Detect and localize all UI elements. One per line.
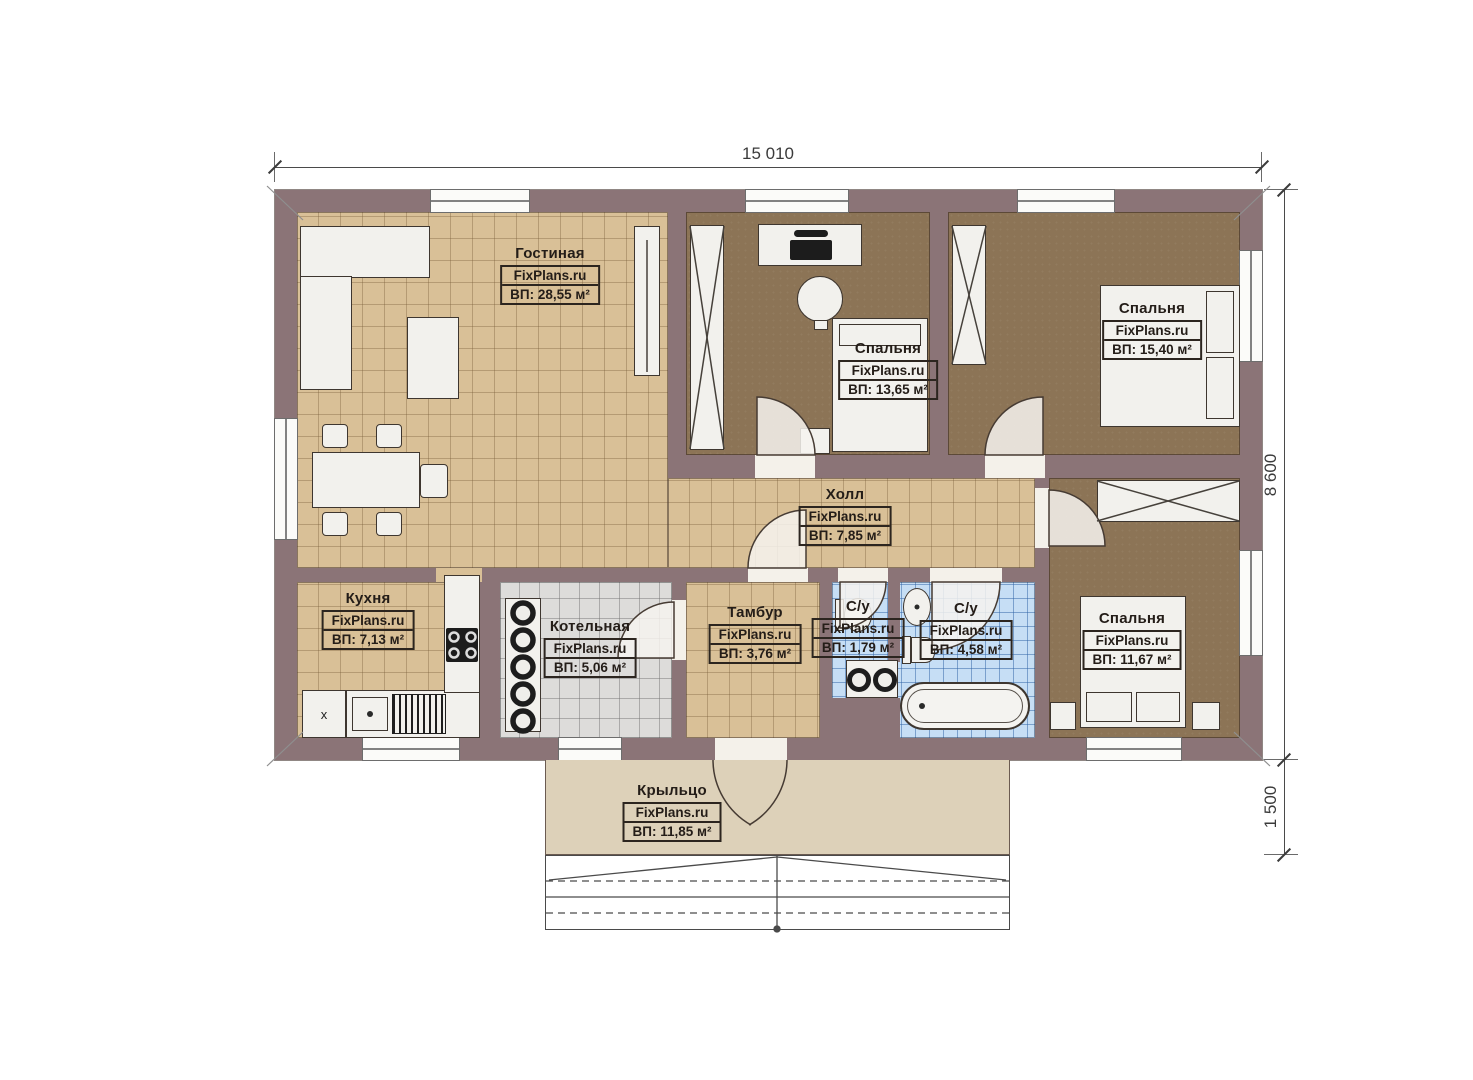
brand-watermark: FixPlans.ru	[1104, 322, 1200, 339]
room-label-living: Гостиная FixPlans.ru ВП: 28,55 м²	[500, 245, 600, 305]
chair	[376, 424, 402, 448]
wardrobe	[952, 225, 986, 365]
door-opening	[672, 600, 686, 660]
dish-rack	[392, 694, 446, 734]
room-label-box: FixPlans.ru ВП: 7,85 м²	[799, 506, 892, 546]
stove	[446, 628, 478, 662]
room-label-wc-big: С/у FixPlans.ru ВП: 4,58 м²	[920, 600, 1013, 660]
fridge-mark: x	[321, 707, 328, 722]
door-opening	[755, 455, 815, 478]
brand-watermark: FixPlans.ru	[625, 804, 720, 821]
brand-watermark: FixPlans.ru	[814, 620, 903, 637]
room-area: ВП: 7,13 м²	[324, 629, 413, 648]
room-label-box: FixPlans.ru ВП: 4,58 м²	[920, 620, 1013, 660]
dining-table	[312, 452, 420, 508]
room-label-bedroom2: Спальня FixPlans.ru ВП: 15,40 м²	[1102, 300, 1202, 360]
pillow	[1136, 692, 1180, 722]
high-chair	[420, 464, 448, 498]
nightstand	[800, 428, 830, 454]
room-name: Гостиная	[500, 245, 600, 262]
window	[430, 189, 530, 213]
fridge: x	[302, 690, 346, 738]
room-area: ВП: 3,76 м²	[711, 643, 800, 662]
room-label-bedroom1: Спальня FixPlans.ru ВП: 13,65 м²	[838, 340, 938, 400]
brand-watermark: FixPlans.ru	[324, 612, 413, 629]
dimension-height: 8 600	[1261, 454, 1281, 497]
room-label-hall: Холл FixPlans.ru ВП: 7,85 м²	[799, 486, 892, 546]
chair	[376, 512, 402, 536]
room-label-box: FixPlans.ru ВП: 3,76 м²	[709, 624, 802, 664]
office-chair	[797, 276, 843, 322]
room-area: ВП: 7,85 м²	[801, 525, 890, 544]
boiler-unit	[505, 598, 541, 732]
room-label-box: FixPlans.ru ВП: 1,79 м²	[812, 618, 905, 658]
wardrobe	[1097, 480, 1240, 522]
nightstand	[1050, 702, 1076, 730]
room-label-box: FixPlans.ru ВП: 11,67 м²	[1083, 630, 1182, 670]
room-name: Котельная	[544, 618, 637, 635]
brand-watermark: FixPlans.ru	[711, 626, 800, 643]
room-name: Тамбур	[709, 604, 802, 621]
dimension-width: 15 010	[742, 144, 794, 164]
porch-deck	[545, 760, 1010, 855]
chair	[322, 512, 348, 536]
sofa	[300, 276, 352, 390]
nightstand	[1192, 702, 1220, 730]
room-area: ВП: 5,06 м²	[546, 657, 635, 676]
window	[1239, 550, 1263, 656]
dimension-line-right	[1284, 190, 1285, 760]
dimension-porch-height: 1 500	[1261, 786, 1281, 829]
pillow	[1206, 357, 1234, 419]
brand-watermark: FixPlans.ru	[546, 640, 635, 657]
coffee-table	[407, 317, 459, 399]
room-label-box: FixPlans.ru ВП: 7,13 м²	[322, 610, 415, 650]
room-label-boiler: Котельная FixPlans.ru ВП: 5,06 м²	[544, 618, 637, 678]
room-area: ВП: 4,58 м²	[922, 639, 1011, 658]
washing-machine	[846, 660, 898, 698]
room-label-kitchen: Кухня FixPlans.ru ВП: 7,13 м²	[322, 590, 415, 650]
room-label-box: FixPlans.ru ВП: 13,65 м²	[838, 360, 938, 400]
room-area: ВП: 11,85 м²	[625, 821, 720, 840]
window	[1086, 737, 1182, 761]
window	[558, 737, 622, 761]
wardrobe	[690, 225, 724, 450]
room-area: ВП: 13,65 м²	[840, 379, 936, 398]
brand-watermark: FixPlans.ru	[1085, 632, 1180, 649]
brand-watermark: FixPlans.ru	[801, 508, 890, 525]
room-label-wc-small: С/у FixPlans.ru ВП: 1,79 м²	[812, 598, 905, 658]
door-opening	[985, 455, 1045, 478]
laptop	[790, 240, 832, 260]
room-name: Кухня	[322, 590, 415, 607]
sofa	[300, 226, 430, 278]
room-area: ВП: 11,67 м²	[1085, 649, 1180, 668]
room-area: ВП: 15,40 м²	[1104, 339, 1200, 358]
chair	[322, 424, 348, 448]
room-area: ВП: 28,55 м²	[502, 284, 598, 303]
laptop	[794, 230, 828, 237]
room-area: ВП: 1,79 м²	[814, 637, 903, 656]
window	[274, 418, 298, 540]
pillow	[1206, 291, 1234, 353]
room-label-porch: Крыльцо FixPlans.ru ВП: 11,85 м²	[623, 782, 722, 842]
room-name: С/у	[812, 598, 905, 615]
office-chair	[814, 320, 828, 330]
cabinet	[634, 226, 660, 376]
door-opening	[838, 568, 888, 582]
room-name: С/у	[920, 600, 1013, 617]
room-name: Спальня	[838, 340, 938, 357]
room-label-box: FixPlans.ru ВП: 28,55 м²	[500, 265, 600, 305]
floor-plan: x	[0, 0, 1473, 1080]
porch-steps	[545, 855, 1010, 930]
window	[362, 737, 460, 761]
room-label-box: FixPlans.ru ВП: 15,40 м²	[1102, 320, 1202, 360]
wall-segment	[832, 698, 900, 738]
brand-watermark: FixPlans.ru	[840, 362, 936, 379]
room-label-box: FixPlans.ru ВП: 5,06 м²	[544, 638, 637, 678]
room-label-tambour: Тамбур FixPlans.ru ВП: 3,76 м²	[709, 604, 802, 664]
room-name: Холл	[799, 486, 892, 503]
room-name: Спальня	[1083, 610, 1182, 627]
door-opening	[1035, 488, 1049, 548]
door-opening	[748, 568, 808, 582]
room-label-bedroom3: Спальня FixPlans.ru ВП: 11,67 м²	[1083, 610, 1182, 670]
entrance-door-opening	[715, 738, 787, 760]
door-opening	[930, 568, 1002, 582]
brand-watermark: FixPlans.ru	[922, 622, 1011, 639]
pillow	[1086, 692, 1132, 722]
dimension-line-top	[275, 167, 1262, 168]
window	[745, 189, 849, 213]
window	[1017, 189, 1115, 213]
room-name: Крыльцо	[623, 782, 722, 799]
brand-watermark: FixPlans.ru	[502, 267, 598, 284]
window	[1239, 250, 1263, 362]
room-label-box: FixPlans.ru ВП: 11,85 м²	[623, 802, 722, 842]
bathtub	[900, 682, 1030, 730]
kitchen-sink	[352, 697, 388, 731]
dimension-line-porch	[1284, 760, 1285, 855]
room-name: Спальня	[1102, 300, 1202, 317]
